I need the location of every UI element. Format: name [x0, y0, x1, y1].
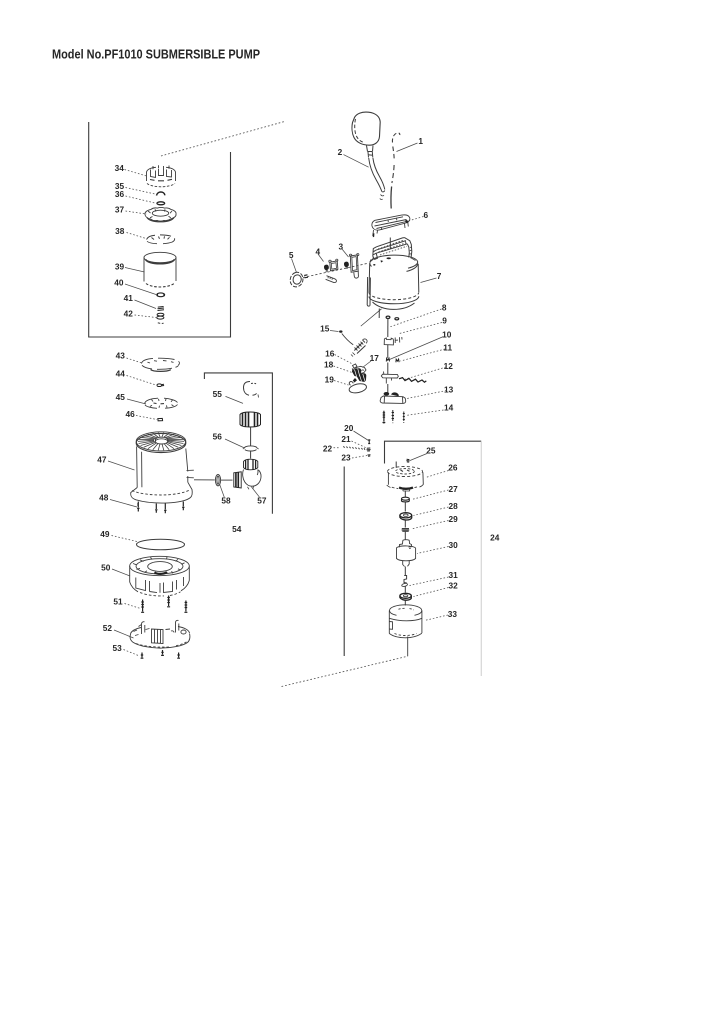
- svg-text:9: 9: [442, 316, 447, 326]
- svg-text:56: 56: [213, 431, 223, 441]
- svg-text:22: 22: [323, 443, 333, 453]
- svg-text:47: 47: [97, 455, 107, 465]
- svg-text:20: 20: [344, 423, 354, 433]
- svg-text:28: 28: [448, 501, 458, 511]
- svg-text:48: 48: [99, 493, 109, 503]
- svg-text:43: 43: [116, 351, 126, 361]
- svg-text:45: 45: [116, 392, 126, 402]
- svg-text:51: 51: [113, 597, 123, 607]
- svg-text:33: 33: [448, 609, 458, 619]
- svg-text:42: 42: [124, 308, 134, 318]
- svg-text:31: 31: [448, 570, 458, 580]
- svg-text:25: 25: [426, 446, 436, 456]
- svg-text:4: 4: [315, 246, 320, 256]
- svg-text:Model No.PF1010 SUBMERSIBLE PU: Model No.PF1010 SUBMERSIBLE PUMP: [52, 47, 260, 62]
- svg-text:1: 1: [418, 136, 423, 146]
- svg-text:26: 26: [448, 463, 458, 473]
- svg-text:23: 23: [341, 453, 351, 463]
- svg-text:34: 34: [115, 163, 125, 173]
- svg-text:8: 8: [442, 303, 447, 313]
- svg-text:30: 30: [448, 540, 458, 550]
- svg-text:15: 15: [320, 324, 330, 334]
- svg-text:13: 13: [444, 385, 454, 395]
- svg-text:55: 55: [213, 389, 223, 399]
- svg-text:2: 2: [338, 147, 343, 157]
- svg-text:52: 52: [103, 623, 113, 633]
- svg-text:24: 24: [490, 532, 500, 542]
- svg-text:57: 57: [257, 496, 267, 506]
- svg-text:6: 6: [423, 210, 428, 220]
- svg-text:19: 19: [325, 374, 335, 384]
- svg-text:32: 32: [448, 580, 458, 590]
- svg-text:27: 27: [448, 484, 458, 494]
- svg-text:38: 38: [115, 226, 125, 236]
- svg-text:14: 14: [444, 403, 454, 413]
- svg-text:58: 58: [221, 496, 231, 506]
- svg-text:12: 12: [444, 361, 454, 371]
- svg-text:37: 37: [115, 204, 125, 214]
- svg-text:7: 7: [437, 271, 442, 281]
- svg-text:54: 54: [232, 524, 242, 534]
- svg-text:21: 21: [341, 434, 351, 444]
- svg-text:49: 49: [100, 529, 110, 539]
- svg-text:18: 18: [324, 360, 334, 370]
- svg-text:39: 39: [115, 262, 125, 272]
- svg-text:11: 11: [443, 342, 452, 352]
- svg-text:36: 36: [115, 189, 125, 199]
- svg-text:53: 53: [112, 643, 122, 653]
- svg-text:16: 16: [325, 349, 335, 359]
- svg-text:10: 10: [442, 329, 452, 339]
- svg-text:46: 46: [125, 409, 135, 419]
- svg-text:29: 29: [448, 514, 458, 524]
- svg-text:17: 17: [370, 353, 380, 363]
- svg-text:44: 44: [116, 369, 126, 379]
- svg-text:41: 41: [124, 293, 134, 303]
- svg-text:50: 50: [101, 562, 111, 572]
- svg-text:40: 40: [114, 277, 124, 287]
